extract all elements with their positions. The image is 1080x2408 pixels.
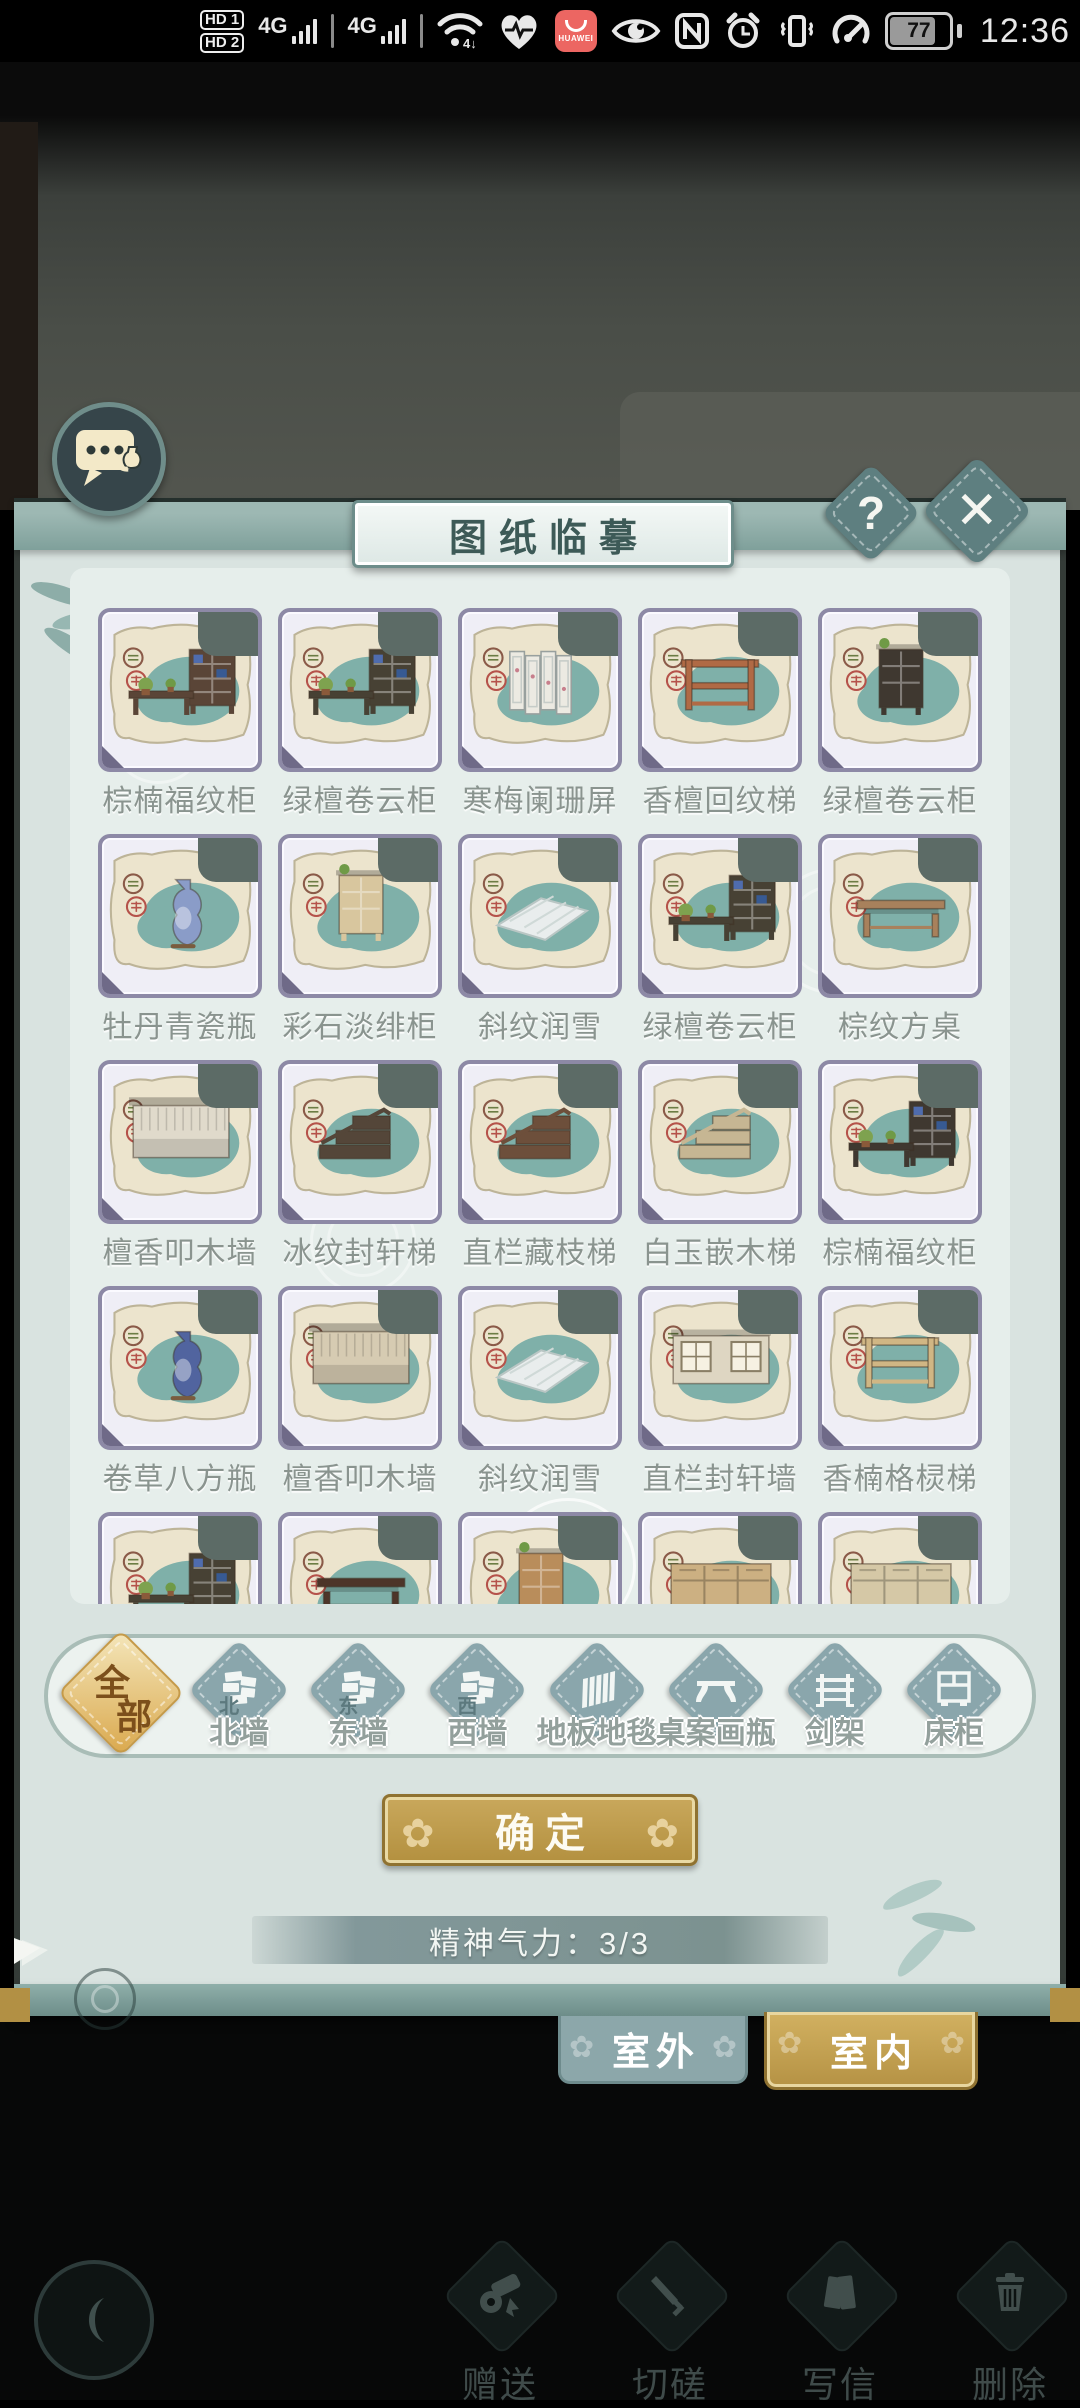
card-fold-decoration	[820, 1196, 846, 1222]
blueprint-card[interactable]: 斜纹润雪	[458, 1286, 622, 1498]
card-corner-tab	[918, 836, 980, 882]
blueprint-card[interactable]	[818, 1512, 982, 1604]
blueprint-card[interactable]: 绿檀卷云柜	[278, 608, 442, 820]
card-corner-tab	[558, 1288, 620, 1334]
blueprint-card-image	[98, 834, 262, 998]
card-corner-tab	[378, 836, 440, 882]
dialog-title: 图纸临摹	[437, 507, 649, 562]
blueprint-card-label: 直栏封轩墙	[638, 1454, 802, 1498]
card-corner-tab	[738, 1062, 800, 1108]
card-corner-tab	[558, 836, 620, 882]
petal-decoration: ✿	[940, 2026, 965, 2061]
blueprint-card[interactable]	[638, 1512, 802, 1604]
blueprint-card-label: 棕楠福纹柜	[98, 776, 262, 820]
action-label: 删除	[940, 2356, 1080, 2408]
blueprint-card[interactable]: 棕楠福纹柜	[98, 608, 262, 820]
scene-wall-shadow	[0, 122, 38, 510]
blueprint-card-label: 檀香叩木墙	[278, 1454, 442, 1498]
blueprint-card-label: 卷草八方瓶	[98, 1454, 262, 1498]
blueprint-card-image	[278, 1060, 442, 1224]
blueprint-card-image	[458, 608, 622, 772]
blueprint-card-image	[458, 1512, 622, 1604]
hd-voice-icons: HD 1 HD 2	[200, 10, 244, 53]
card-corner-tab	[378, 1514, 440, 1560]
action-sword-button[interactable]: 切磋	[600, 2252, 740, 2400]
sword-icon	[646, 2270, 694, 2318]
battery-nub	[957, 24, 962, 38]
card-fold-decoration	[280, 744, 306, 770]
blueprint-card[interactable]: 香檀回纹梯	[638, 608, 802, 820]
card-corner-tab	[378, 1062, 440, 1108]
action-trash-button[interactable]: 删除	[940, 2252, 1080, 2400]
eye-comfort-icon	[611, 14, 661, 48]
card-corner-tab	[558, 1062, 620, 1108]
action-label: 写信	[770, 2356, 910, 2408]
help-icon: ?	[857, 490, 885, 536]
category-label: 床柜	[864, 1708, 1044, 1752]
gold-corner-right	[1050, 1988, 1080, 2022]
blueprint-card-label: 绿檀卷云柜	[818, 776, 982, 820]
blueprint-grid: 棕楠福纹柜 绿檀卷云柜	[98, 608, 982, 1604]
card-fold-decoration	[280, 970, 306, 996]
petal-decoration: ✿	[401, 1811, 435, 1857]
action-label: 切磋	[600, 2356, 740, 2408]
card-corner-tab	[738, 1288, 800, 1334]
blueprint-card-image	[818, 608, 982, 772]
divider	[331, 14, 334, 48]
blueprint-card-image	[458, 1286, 622, 1450]
blueprint-card[interactable]: 棕楠福纹柜	[818, 1060, 982, 1272]
card-fold-decoration	[280, 1422, 306, 1448]
petal-decoration: ✿	[777, 2026, 802, 2061]
blueprint-card-image	[278, 1286, 442, 1450]
vibrate-icon	[777, 11, 817, 51]
blueprint-card-label: 绿檀卷云柜	[638, 1002, 802, 1046]
gift-scroll-icon	[476, 2270, 524, 2318]
letter-icon	[816, 2270, 864, 2318]
action-letter-button[interactable]: 写信	[770, 2252, 910, 2400]
card-corner-tab	[738, 610, 800, 656]
blueprint-card[interactable]: 檀香叩木墙	[98, 1060, 262, 1272]
card-fold-decoration	[460, 970, 486, 996]
stamina-label: 精神气力：3/3	[429, 1918, 651, 1963]
petal-decoration: ✿	[712, 2030, 737, 2065]
category-bedcab-icon	[930, 1666, 978, 1714]
blueprint-card[interactable]	[458, 1512, 622, 1604]
blueprint-card-image	[818, 1060, 982, 1224]
blueprint-grid-panel: 棕楠福纹柜 绿檀卷云柜	[70, 568, 1010, 1604]
blueprint-card-label: 白玉嵌木梯	[638, 1228, 802, 1272]
blueprint-card[interactable]: 彩石淡绯柜	[278, 834, 442, 1046]
action-gift-scroll-button[interactable]: 赠送	[430, 2252, 570, 2400]
card-corner-tab	[198, 610, 260, 656]
action-bar: 赠送 切磋 写信 删除	[430, 2252, 1080, 2400]
blueprint-card[interactable]: 冰纹封轩梯	[278, 1060, 442, 1272]
category-tab-床柜[interactable]: 床柜	[904, 1646, 1004, 1746]
card-corner-tab	[198, 836, 260, 882]
card-fold-decoration	[460, 1422, 486, 1448]
card-corner-tab	[918, 1514, 980, 1560]
card-fold-decoration	[100, 744, 126, 770]
card-corner-tab	[738, 836, 800, 882]
blueprint-card-label: 直栏藏枝梯	[458, 1228, 622, 1272]
tab-outdoor-label: 室外	[606, 2021, 700, 2076]
clock: 12:36	[980, 12, 1070, 51]
blueprint-card-label: 冰纹封轩梯	[278, 1228, 442, 1272]
blueprint-card-image	[818, 1512, 982, 1604]
card-fold-decoration	[820, 744, 846, 770]
battery-icon: 77	[885, 12, 953, 50]
blueprint-card-image	[98, 1512, 262, 1604]
blueprint-card[interactable]: 棕纹方桌	[818, 834, 982, 1046]
card-fold-decoration	[460, 744, 486, 770]
hd1-icon: HD 1	[200, 10, 244, 30]
blueprint-card-label: 彩石淡绯柜	[278, 1002, 442, 1046]
blueprint-card-image	[458, 1060, 622, 1224]
tab-indoor-label: 室内	[824, 2022, 918, 2077]
card-corner-tab	[198, 1288, 260, 1334]
trash-icon	[986, 2270, 1034, 2318]
tab-indoor[interactable]: ✿ 室内 ✿	[764, 2012, 978, 2090]
card-corner-tab	[918, 610, 980, 656]
blueprint-card[interactable]: 白玉嵌木梯	[638, 1060, 802, 1272]
blueprint-card-label: 绿檀卷云柜	[278, 776, 442, 820]
confirm-label: 确定	[485, 1801, 595, 1859]
blueprint-card[interactable]: 檀香叩木墙	[278, 1286, 442, 1498]
card-fold-decoration	[640, 1196, 666, 1222]
category-rack-icon	[811, 1666, 859, 1714]
blueprint-card-label: 棕楠福纹柜	[818, 1228, 982, 1272]
blueprint-card[interactable]: 卷草八方瓶	[98, 1286, 262, 1498]
blueprint-card-label: 牡丹青瓷瓶	[98, 1002, 262, 1046]
card-fold-decoration	[820, 1422, 846, 1448]
card-fold-decoration	[640, 970, 666, 996]
blueprint-card-label: 檀香叩木墙	[98, 1228, 262, 1272]
blueprint-card-label: 寒梅阑珊屏	[458, 776, 622, 820]
blueprint-card-image	[278, 834, 442, 998]
card-fold-decoration	[460, 1196, 486, 1222]
chat-button[interactable]	[52, 402, 166, 516]
confirm-button[interactable]: ✿ 确定 ✿	[382, 1794, 698, 1866]
blueprint-card-image	[638, 834, 802, 998]
card-corner-tab	[198, 1514, 260, 1560]
blueprint-card-label: 棕纹方桌	[818, 1002, 982, 1046]
blueprint-card[interactable]: 绿檀卷云柜	[818, 608, 982, 820]
card-corner-tab	[738, 1514, 800, 1560]
card-fold-decoration	[100, 970, 126, 996]
card-corner-tab	[918, 1288, 980, 1334]
card-corner-tab	[558, 610, 620, 656]
blueprint-card-label: 斜纹润雪	[458, 1002, 622, 1046]
trim-swirl-decoration	[74, 1968, 136, 2030]
card-corner-tab	[378, 1288, 440, 1334]
category-floor-icon	[573, 1666, 621, 1714]
petal-decoration: ✿	[645, 1811, 679, 1857]
blueprint-card[interactable]: 绿檀卷云柜	[638, 834, 802, 1046]
blueprint-card[interactable]: 香楠格棂梯	[818, 1286, 982, 1498]
card-fold-decoration	[640, 744, 666, 770]
blueprint-card-image	[278, 608, 442, 772]
card-corner-tab	[918, 1062, 980, 1108]
blueprint-card-image	[98, 608, 262, 772]
card-fold-decoration	[280, 1196, 306, 1222]
blueprint-card[interactable]: 牡丹青瓷瓶	[98, 834, 262, 1046]
card-fold-decoration	[820, 970, 846, 996]
category-bar: 全 部 北 北墙 东 东墙 西 西墙	[44, 1634, 1036, 1758]
card-corner-tab	[198, 1062, 260, 1108]
alarm-icon	[723, 11, 763, 51]
blueprint-card-label: 香檀回纹梯	[638, 776, 802, 820]
card-corner-tab	[558, 1514, 620, 1560]
stamina-bar: 精神气力：3/3	[252, 1916, 828, 1964]
card-fold-decoration	[100, 1422, 126, 1448]
petal-decoration: ✿	[569, 2030, 594, 2065]
back-button[interactable]	[34, 2260, 154, 2380]
blueprint-card-image	[638, 1512, 802, 1604]
health-heart-icon	[497, 11, 541, 51]
dialog-title-plaque: 图纸临摹	[352, 500, 734, 568]
status-bar: HD 1 HD 2 4G 4G 4↓ HUAWEI	[0, 0, 1080, 62]
blueprint-card[interactable]: 直栏封轩墙	[638, 1286, 802, 1498]
blueprint-card[interactable]	[278, 1512, 442, 1604]
card-fold-decoration	[100, 1196, 126, 1222]
blueprint-card-image	[638, 608, 802, 772]
blueprint-card-label: 斜纹润雪	[458, 1454, 622, 1498]
blueprint-card-image	[818, 834, 982, 998]
signal-sim2-icon: 4G	[348, 18, 406, 44]
back-crescent-icon	[66, 2292, 122, 2348]
chat-bubble-icon	[70, 422, 148, 496]
blueprint-card-image	[458, 834, 622, 998]
blueprint-card-image	[638, 1060, 802, 1224]
blueprint-card[interactable]: 寒梅阑珊屏	[458, 608, 622, 820]
wifi-icon: 4↓	[437, 12, 483, 50]
blueprint-card-image	[98, 1060, 262, 1224]
gold-corner-left	[0, 1988, 30, 2022]
card-fold-decoration	[640, 1422, 666, 1448]
blueprint-card[interactable]: 斜纹润雪	[458, 834, 622, 1046]
nfc-icon	[675, 12, 709, 50]
blueprint-card-image	[818, 1286, 982, 1450]
action-label: 赠送	[430, 2356, 570, 2408]
hd2-icon: HD 2	[200, 33, 244, 53]
blueprint-card[interactable]: 直栏藏枝梯	[458, 1060, 622, 1272]
divider	[420, 14, 423, 48]
signal-sim1-icon: 4G	[258, 18, 316, 44]
card-corner-tab	[378, 610, 440, 656]
moth-decoration	[14, 1938, 40, 1964]
category-table-icon	[692, 1666, 740, 1714]
performance-mode-icon	[831, 11, 871, 51]
close-icon: ✕	[955, 485, 999, 537]
svg-text:4↓: 4↓	[463, 36, 477, 50]
huawei-appgallery-icon: HUAWEI	[555, 10, 597, 52]
tab-outdoor[interactable]: ✿ 室外 ✿	[558, 2016, 748, 2084]
blueprint-card-label: 香楠格棂梯	[818, 1454, 982, 1498]
blueprint-card-image	[98, 1286, 262, 1450]
blueprint-card-image	[638, 1286, 802, 1450]
blueprint-card[interactable]	[98, 1512, 262, 1604]
blueprint-card-image	[278, 1512, 442, 1604]
